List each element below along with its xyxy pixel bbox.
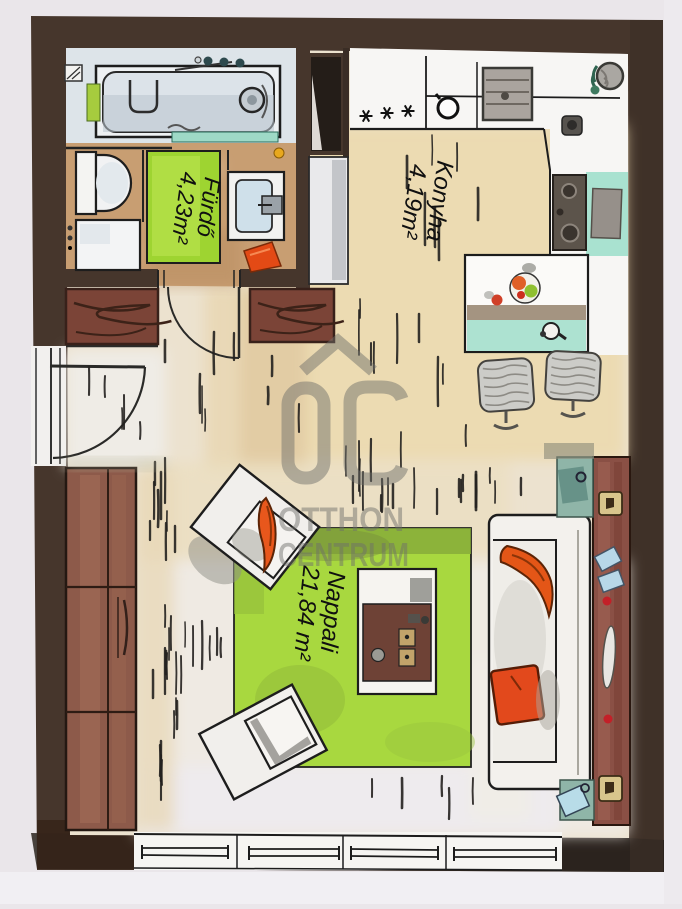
- svg-text:OTTHON: OTTHON: [278, 501, 404, 539]
- svg-text:CENTRUM: CENTRUM: [278, 536, 409, 573]
